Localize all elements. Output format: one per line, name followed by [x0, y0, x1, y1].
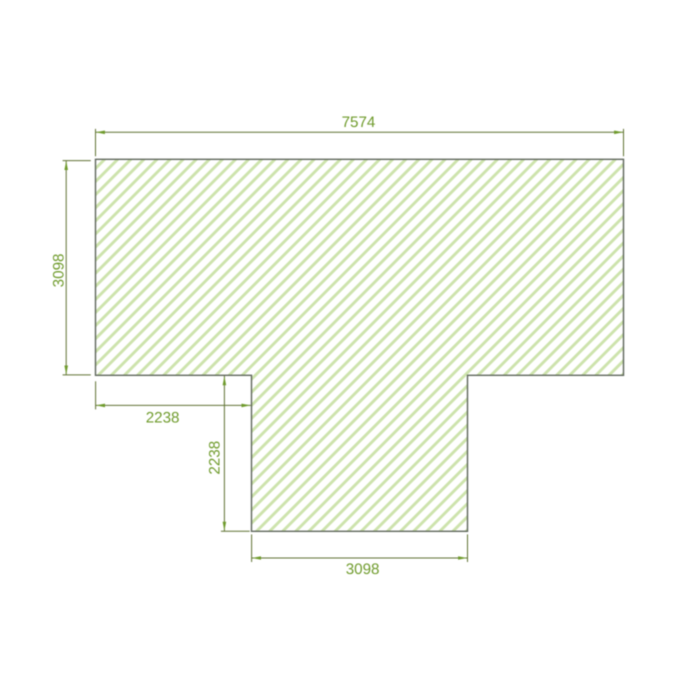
svg-text:2238: 2238 [206, 441, 223, 475]
svg-text:7574: 7574 [342, 114, 376, 131]
svg-text:3098: 3098 [51, 254, 68, 288]
svg-text:3098: 3098 [346, 561, 380, 578]
svg-text:2238: 2238 [146, 410, 180, 427]
